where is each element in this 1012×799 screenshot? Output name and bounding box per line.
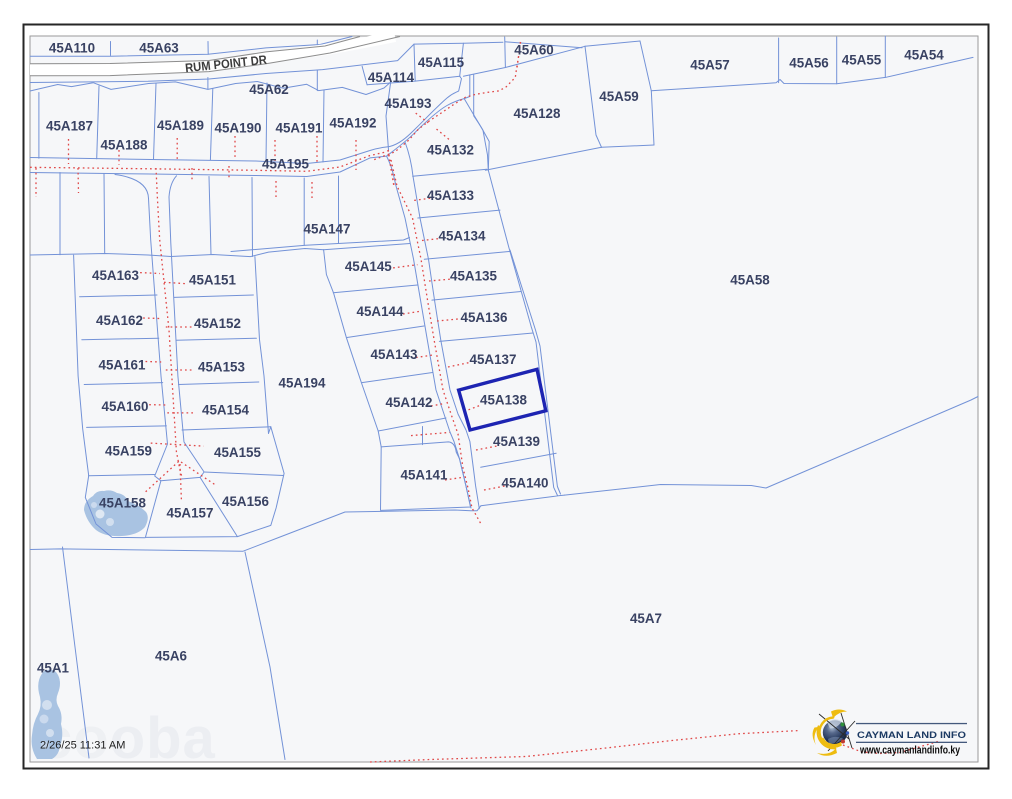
svg-text:45A160: 45A160 [102,399,149,414]
svg-text:CAYMAN LAND INFO: CAYMAN LAND INFO [857,730,966,740]
svg-text:45A133: 45A133 [427,188,474,203]
svg-text:45A6: 45A6 [155,649,187,664]
svg-text:45A54: 45A54 [904,48,944,63]
svg-text:45A128: 45A128 [514,106,561,121]
svg-text:45A144: 45A144 [357,304,404,319]
svg-text:45A156: 45A156 [222,494,269,509]
svg-text:45A60: 45A60 [514,43,553,58]
svg-text:45A142: 45A142 [386,395,433,410]
svg-text:45A154: 45A154 [202,403,249,418]
svg-text:45A192: 45A192 [330,116,377,131]
svg-text:45A55: 45A55 [842,53,882,68]
svg-text:45A140: 45A140 [502,476,549,491]
svg-text:45A163: 45A163 [92,268,139,283]
svg-text:45A191: 45A191 [276,121,323,136]
svg-text:45A195: 45A195 [262,157,309,172]
svg-text:45A115: 45A115 [418,55,465,70]
svg-text:45A155: 45A155 [214,445,261,460]
svg-text:45A188: 45A188 [101,138,148,153]
svg-text:45A137: 45A137 [470,352,517,367]
svg-text:45A158: 45A158 [99,496,146,511]
svg-text:45A63: 45A63 [139,41,178,56]
svg-text:45A157: 45A157 [167,506,214,521]
svg-text:2/26/25 11:31 AM: 2/26/25 11:31 AM [40,740,125,752]
svg-text:45A153: 45A153 [198,360,245,375]
svg-text:45A145: 45A145 [345,259,392,274]
svg-text:45A152: 45A152 [194,316,241,331]
svg-text:45A194: 45A194 [279,376,326,391]
svg-text:45A162: 45A162 [96,313,143,328]
svg-text:45A136: 45A136 [461,310,508,325]
svg-text:45A1: 45A1 [37,661,70,676]
svg-text:45A138: 45A138 [480,393,527,408]
svg-text:45A114: 45A114 [368,70,415,85]
svg-text:45A189: 45A189 [157,118,204,133]
svg-text:45A159: 45A159 [105,444,152,459]
svg-text:45A190: 45A190 [215,121,262,136]
svg-text:45A141: 45A141 [401,468,448,483]
svg-text:45A161: 45A161 [99,358,146,373]
svg-text:45A58: 45A58 [730,273,770,288]
svg-text:45A132: 45A132 [427,143,474,158]
svg-text:45A151: 45A151 [189,273,236,288]
svg-text:45A143: 45A143 [371,347,418,362]
svg-text:45A193: 45A193 [385,96,432,111]
svg-text:www.caymanlandinfo.ky: www.caymanlandinfo.ky [859,745,960,757]
svg-text:45A56: 45A56 [789,56,828,71]
svg-text:45A110: 45A110 [49,41,95,56]
svg-text:45A135: 45A135 [450,269,497,284]
svg-text:45A57: 45A57 [690,58,729,73]
svg-text:45A187: 45A187 [46,119,93,134]
svg-text:45A59: 45A59 [599,89,638,104]
svg-text:45A7: 45A7 [630,611,662,626]
svg-text:45A134: 45A134 [439,229,486,244]
svg-text:cooba: cooba [40,706,216,771]
svg-text:45A139: 45A139 [493,434,540,449]
svg-text:45A62: 45A62 [249,82,288,97]
svg-text:45A147: 45A147 [304,222,351,237]
